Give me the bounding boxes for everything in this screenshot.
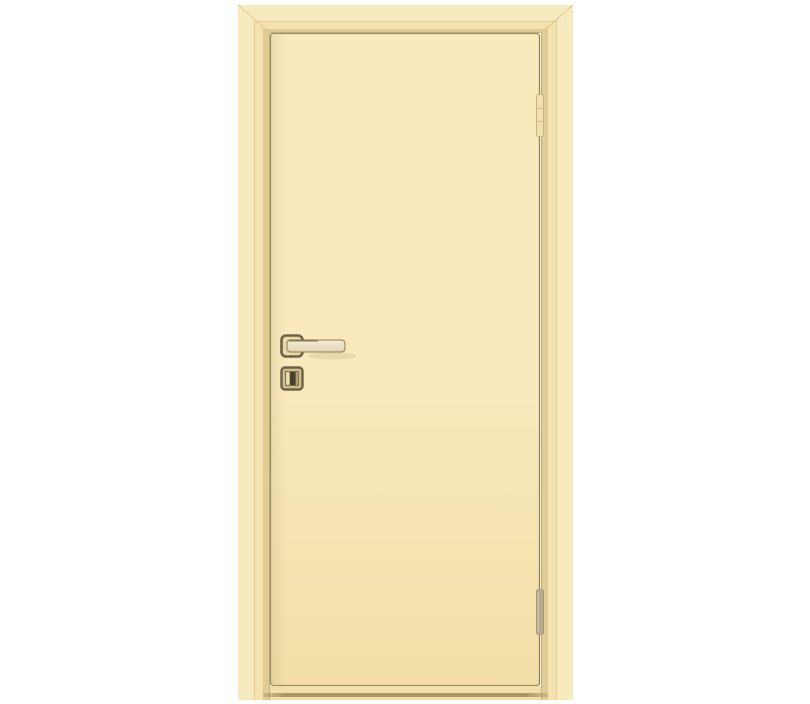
handle-lever-bar bbox=[287, 340, 345, 352]
threshold-line bbox=[263, 693, 548, 697]
bottom-hinge bbox=[537, 590, 544, 635]
bottom-hinge-body bbox=[537, 590, 544, 635]
leaf-left-shading bbox=[272, 35, 286, 684]
escutcheon-highlight-sliver bbox=[286, 372, 289, 385]
handle-drop-shadow bbox=[308, 353, 356, 360]
door-leaf bbox=[271, 34, 540, 686]
wc-escutcheon bbox=[282, 368, 303, 390]
door-illustration bbox=[0, 0, 810, 704]
top-hinge-body bbox=[537, 95, 544, 137]
door-product-image bbox=[0, 0, 810, 704]
top-hinge bbox=[537, 95, 544, 137]
escutcheon-turn-slot bbox=[290, 372, 296, 385]
